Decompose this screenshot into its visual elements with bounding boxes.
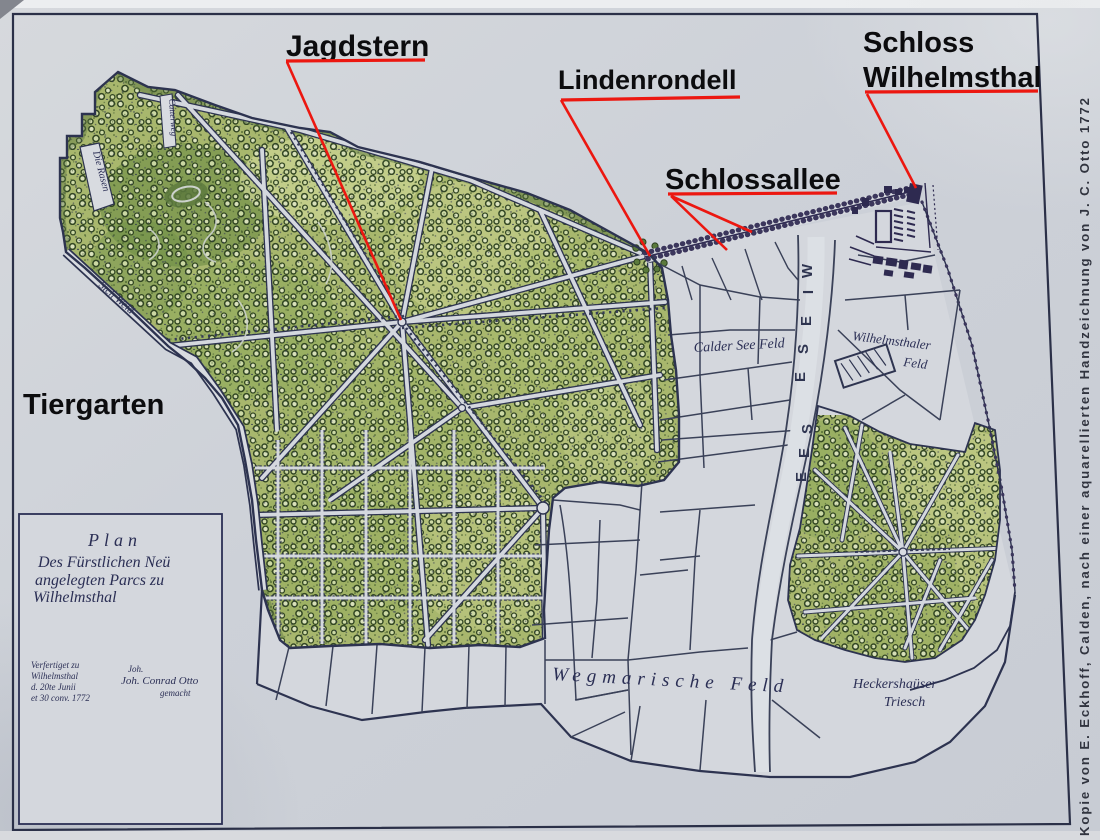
svg-text:E: E [792, 372, 809, 382]
svg-text:S: S [799, 424, 816, 434]
svg-text:S: S [795, 344, 812, 354]
svg-text:I: I [800, 290, 817, 294]
svg-text:Plan: Plan [87, 530, 142, 550]
svg-text:Joh. Conrad Otto: Joh. Conrad Otto [121, 675, 199, 687]
svg-text:Wilhelmsthal: Wilhelmsthal [33, 589, 117, 606]
svg-text:Triesch: Triesch [884, 695, 925, 710]
svg-text:Tiergarten: Tiergarten [23, 389, 164, 421]
svg-text:gemacht: gemacht [160, 688, 191, 698]
svg-text:Joh.: Joh. [128, 664, 143, 674]
svg-text:et 30 conv. 1772: et 30 conv. 1772 [31, 693, 90, 703]
svg-text:W: W [799, 263, 816, 278]
svg-text:angelegten Parcs zu: angelegten Parcs zu [35, 572, 164, 589]
svg-text:Heckershaüser: Heckershaüser [852, 677, 938, 692]
svg-text:Wilhelmsthal: Wilhelmsthal [31, 671, 78, 681]
svg-text:Lindenrondell: Lindenrondell [558, 65, 737, 95]
svg-text:Jagdstern: Jagdstern [286, 30, 429, 63]
svg-text:Wilhelmsthal: Wilhelmsthal [863, 62, 1042, 94]
svg-text:d. 20te Junii: d. 20te Junii [31, 682, 76, 692]
svg-text:Des Fürstlichen Neü: Des Fürstlichen Neü [37, 554, 170, 571]
svg-text:E: E [798, 316, 815, 326]
svg-text:Schlossallee: Schlossallee [665, 164, 841, 196]
svg-text:Feld: Feld [902, 354, 929, 372]
svg-text:Schloss: Schloss [863, 27, 974, 59]
svg-text:Verfertiget zu: Verfertiget zu [31, 660, 80, 670]
